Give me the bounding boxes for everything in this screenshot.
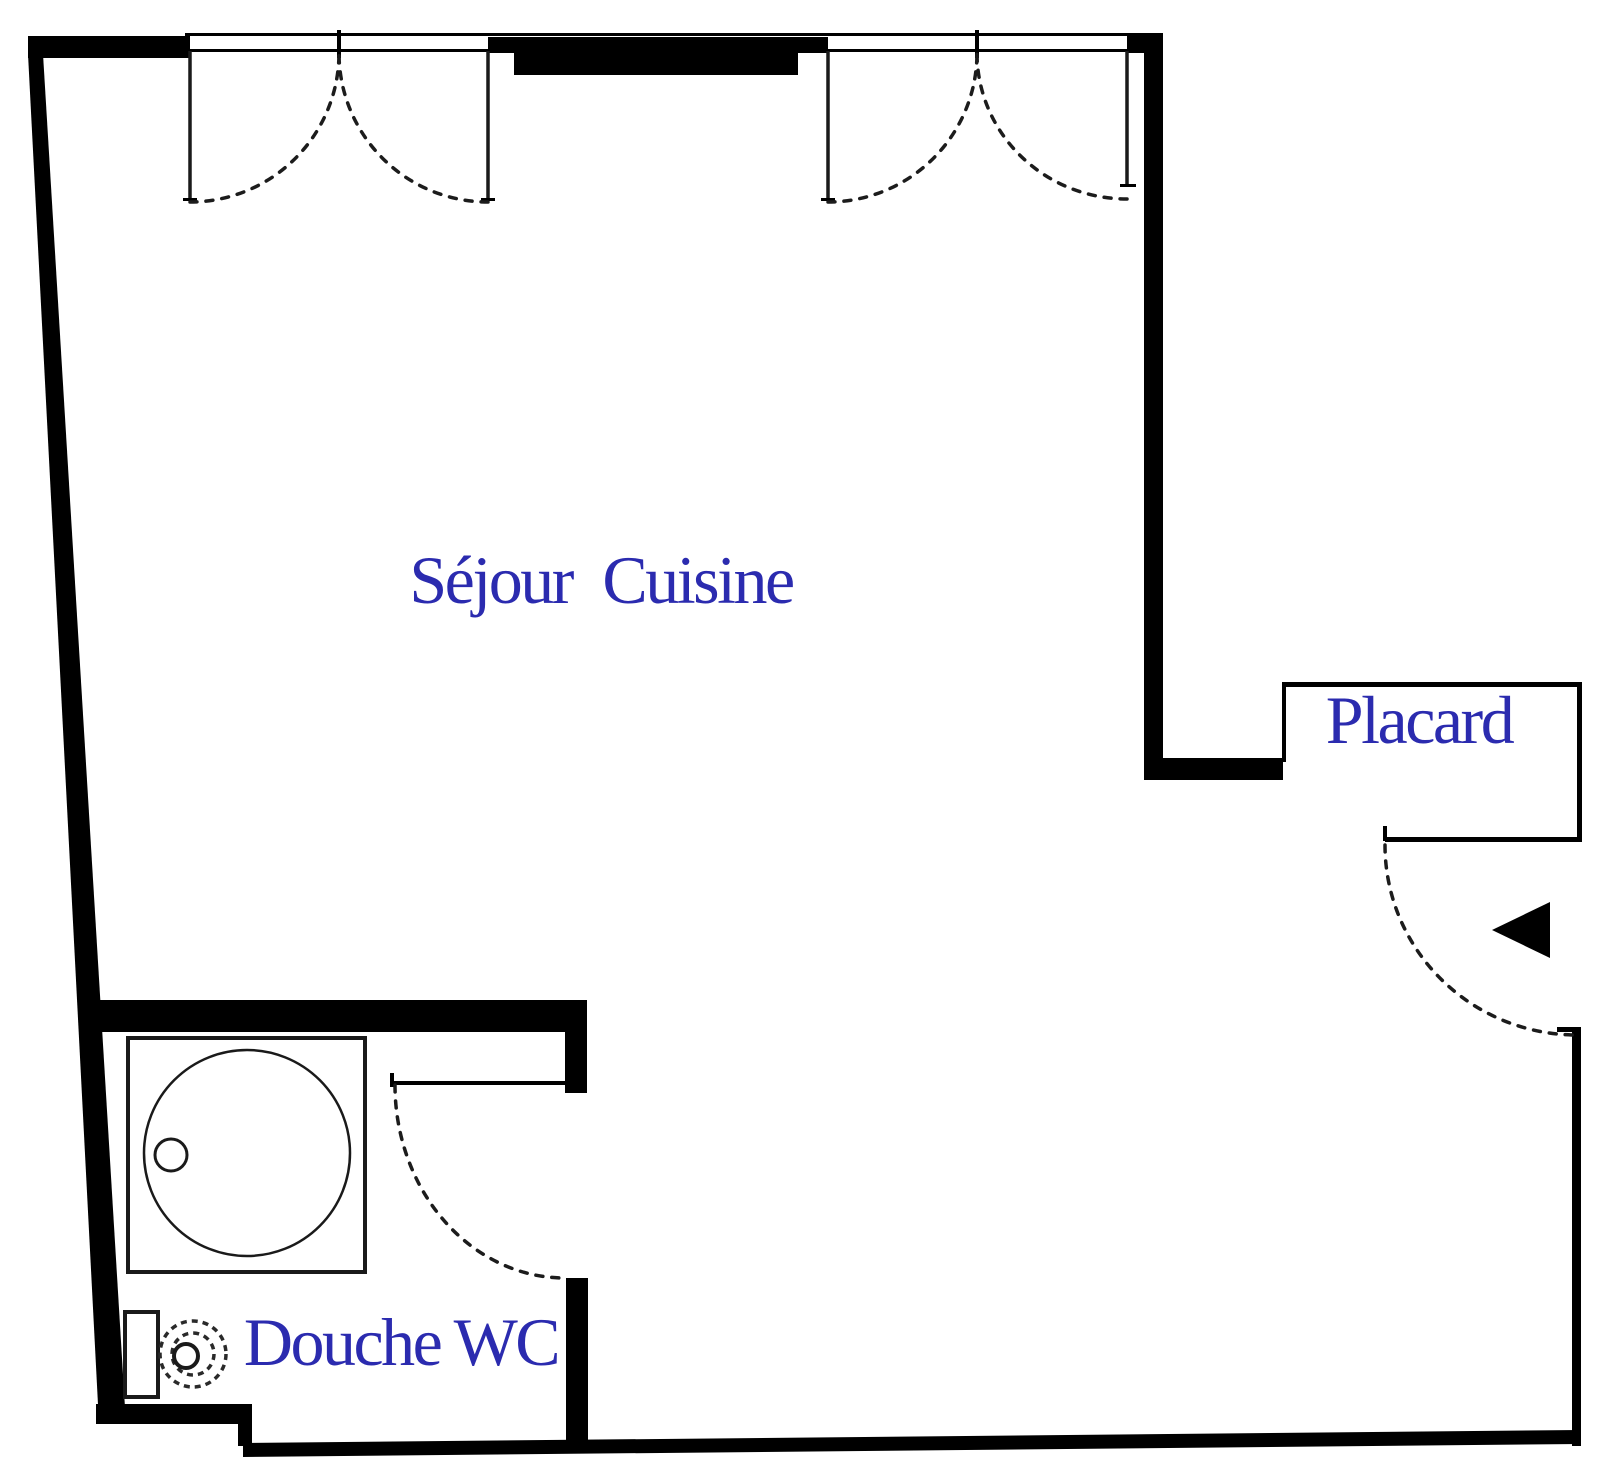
- bathroom-partition-lower: [566, 1278, 588, 1446]
- window-frame-outer-line: [185, 33, 1163, 36]
- bathroom-top-wall: [88, 1000, 587, 1032]
- room-label-douche-wc: Douche WC: [244, 1304, 558, 1380]
- room-label-sejour-cuisine: Séjour Cuisine: [409, 542, 793, 618]
- top-left-wall: [28, 36, 190, 58]
- right-wall-lower-tick: [1557, 1027, 1581, 1032]
- entrance-door-leaf: [1385, 837, 1582, 842]
- entrance-door-leaf-tick: [1383, 826, 1387, 841]
- floor-plan-svg: Séjour Cuisine Placard Douche WC: [0, 0, 1600, 1465]
- top-middle-wall-inner: [514, 37, 798, 75]
- floor-plan: Séjour Cuisine Placard Douche WC: [0, 0, 1600, 1465]
- window-2-right-leaf-foot: [1120, 184, 1136, 187]
- placard-stub-wall: [1144, 758, 1283, 780]
- placard-wall-right: [1577, 682, 1582, 842]
- window-2-frame-inner-line: [828, 49, 1163, 52]
- bathroom-door-leaf: [392, 1081, 567, 1085]
- placard-wall-left: [1282, 682, 1286, 762]
- room-label-placard: Placard: [1326, 682, 1515, 758]
- right-wall-upper: [1144, 34, 1163, 780]
- bathroom-bottom-wall-step: [238, 1424, 252, 1446]
- right-wall-lower: [1572, 1030, 1581, 1446]
- bathroom-partition-upper: [565, 1000, 587, 1093]
